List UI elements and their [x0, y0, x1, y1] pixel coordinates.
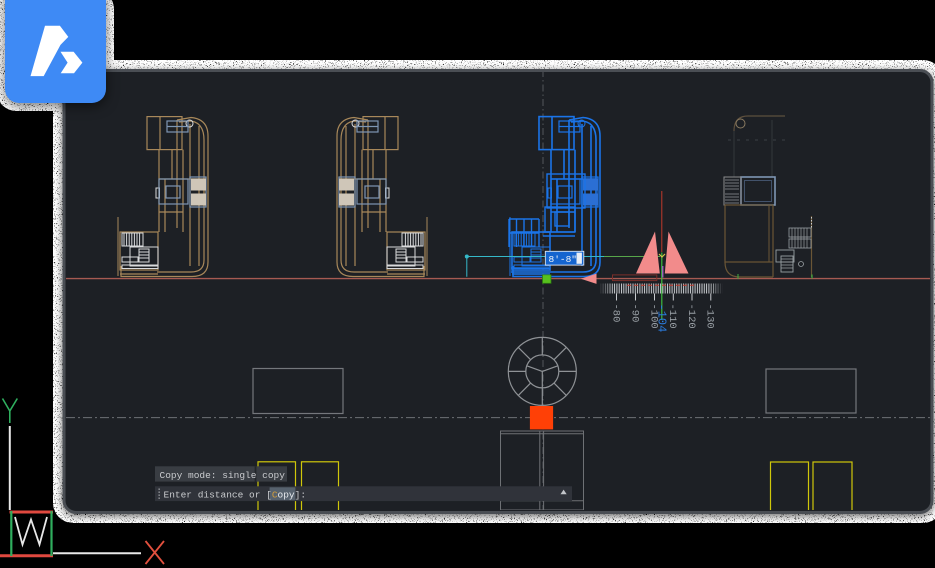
svg-text:8'-8": 8'-8" [549, 254, 578, 265]
svg-text:Copy mode: single copy: Copy mode: single copy [160, 470, 286, 481]
svg-text:-120: -120 [685, 304, 697, 329]
svg-text:-80: -80 [609, 304, 621, 323]
svg-text:-90: -90 [628, 304, 640, 323]
svg-text:-130: -130 [704, 304, 716, 329]
svg-text:-104: -104 [654, 304, 668, 333]
svg-text:Enter distance or [Copy]:: Enter distance or [Copy]: [164, 490, 307, 501]
